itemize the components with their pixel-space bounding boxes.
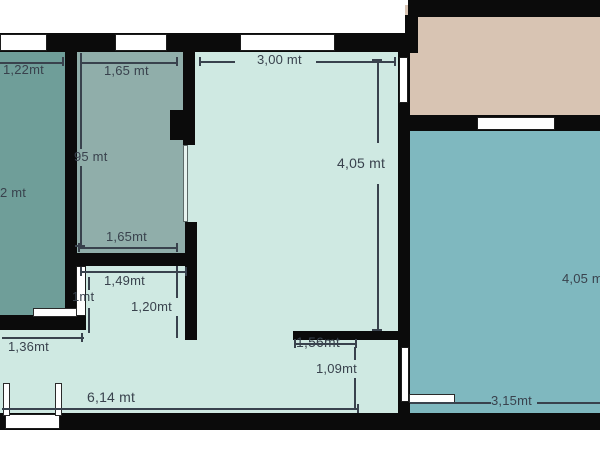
dim-tick bbox=[62, 57, 64, 66]
dim-tick bbox=[372, 329, 382, 331]
window-teal-top bbox=[0, 34, 47, 51]
dim-tick bbox=[355, 339, 357, 348]
dim-tick bbox=[81, 333, 83, 342]
dimension-label-lower-mid-inner: 1,09mt bbox=[316, 362, 357, 376]
dim-tick bbox=[357, 404, 359, 413]
dimension-label-top-mint: 3,00 mt bbox=[257, 53, 302, 67]
floor-plan: 1,22mt 1,65 mt 3,00 mt 4,05 mt 95 mt 2 m… bbox=[0, 0, 600, 460]
dimension-label-top-left: 1,22mt bbox=[3, 63, 44, 77]
dimension-label-gray-bottom: 1,65mt bbox=[106, 230, 147, 244]
window-blue-top bbox=[477, 117, 555, 130]
dim-line bbox=[354, 378, 356, 408]
wall-central-vertical bbox=[185, 222, 197, 340]
dimension-label-blue-bottom: 3,15mt bbox=[491, 394, 532, 408]
wall-beige-top bbox=[408, 0, 600, 17]
dimension-label-top-gray: 1,65 mt bbox=[104, 64, 149, 78]
dim-tick bbox=[199, 57, 201, 66]
dim-tick bbox=[372, 59, 382, 61]
door-opening-bottom bbox=[5, 414, 60, 429]
wall-top-main bbox=[0, 33, 412, 52]
dimension-label-teal-bottom: 1,36mt bbox=[8, 340, 49, 354]
room-beige bbox=[405, 5, 600, 131]
dimension-label-blue-height: 4,05 mt bbox=[562, 272, 600, 286]
dim-line bbox=[88, 308, 90, 333]
dim-line bbox=[537, 402, 600, 404]
dim-tick bbox=[185, 267, 187, 276]
dim-line bbox=[2, 408, 359, 410]
dimension-label-gray-height: 95 mt bbox=[74, 150, 108, 164]
dim-line bbox=[176, 266, 178, 298]
dim-line bbox=[377, 60, 379, 143]
dim-line bbox=[78, 247, 178, 249]
dim-tick bbox=[294, 339, 296, 348]
dimension-label-hall-inner: 1,20mt bbox=[131, 300, 172, 314]
dimension-label-bottom-width: 6,14 mt bbox=[87, 390, 135, 405]
dim-line-strikethrough bbox=[294, 343, 357, 345]
dim-line bbox=[199, 61, 235, 63]
dim-line bbox=[410, 402, 491, 404]
window-gray-top bbox=[115, 34, 167, 51]
dim-tick bbox=[80, 267, 82, 276]
dim-line bbox=[80, 53, 82, 149]
door-post-left bbox=[3, 383, 10, 416]
wall-gray-bottom bbox=[65, 253, 197, 266]
dim-line bbox=[176, 316, 178, 338]
dimension-label-hall-door: 1mt bbox=[72, 290, 94, 304]
dim-line bbox=[377, 184, 379, 331]
wall-pilaster bbox=[170, 110, 195, 140]
wall-teal-bottom bbox=[0, 315, 86, 330]
dimension-label-teal-height: 2 mt bbox=[0, 186, 26, 200]
dim-tick bbox=[176, 57, 178, 66]
dim-tick bbox=[78, 243, 80, 252]
door-opening-blue bbox=[401, 347, 409, 402]
dim-line bbox=[80, 166, 82, 247]
door-post-right bbox=[55, 383, 62, 416]
sliding-door-gray bbox=[183, 145, 188, 222]
window-mint-top bbox=[240, 34, 335, 51]
dimension-label-mint-height: 4,05 mt bbox=[337, 156, 385, 171]
wall-bottom-main bbox=[0, 413, 600, 430]
door-opening-beige bbox=[399, 57, 408, 103]
dim-line bbox=[354, 347, 356, 360]
dim-line bbox=[316, 61, 396, 63]
door-leaf-teal bbox=[33, 308, 77, 317]
dimension-label-hall-width: 1,49mt bbox=[104, 274, 145, 288]
dim-tick bbox=[176, 243, 178, 252]
dim-tick bbox=[394, 57, 396, 66]
